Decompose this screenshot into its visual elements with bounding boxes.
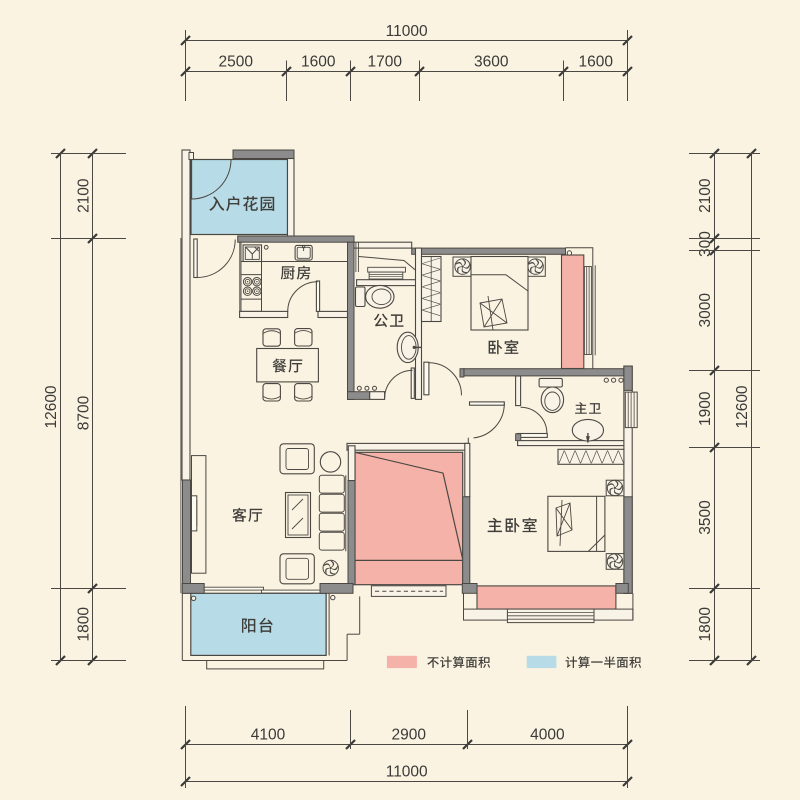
svg-text:3500: 3500: [697, 500, 714, 535]
svg-text:2100: 2100: [75, 178, 92, 213]
svg-text:12600: 12600: [43, 385, 60, 428]
svg-text:1700: 1700: [368, 53, 403, 70]
svg-text:2500: 2500: [219, 53, 254, 70]
svg-text:11000: 11000: [386, 23, 428, 40]
svg-text:4000: 4000: [530, 726, 565, 743]
svg-text:1800: 1800: [75, 607, 92, 642]
svg-text:1800: 1800: [697, 607, 714, 642]
svg-text:1900: 1900: [697, 391, 714, 426]
svg-text:300: 300: [697, 231, 714, 257]
svg-text:2100: 2100: [697, 178, 714, 213]
svg-text:1600: 1600: [301, 53, 336, 70]
svg-text:3000: 3000: [697, 293, 714, 328]
svg-text:8700: 8700: [75, 395, 92, 430]
svg-text:1600: 1600: [578, 53, 613, 70]
svg-text:2900: 2900: [391, 726, 426, 743]
svg-text:12600: 12600: [734, 385, 751, 428]
svg-text:11000: 11000: [386, 763, 428, 780]
svg-text:3600: 3600: [474, 53, 509, 70]
svg-text:4100: 4100: [251, 726, 286, 743]
